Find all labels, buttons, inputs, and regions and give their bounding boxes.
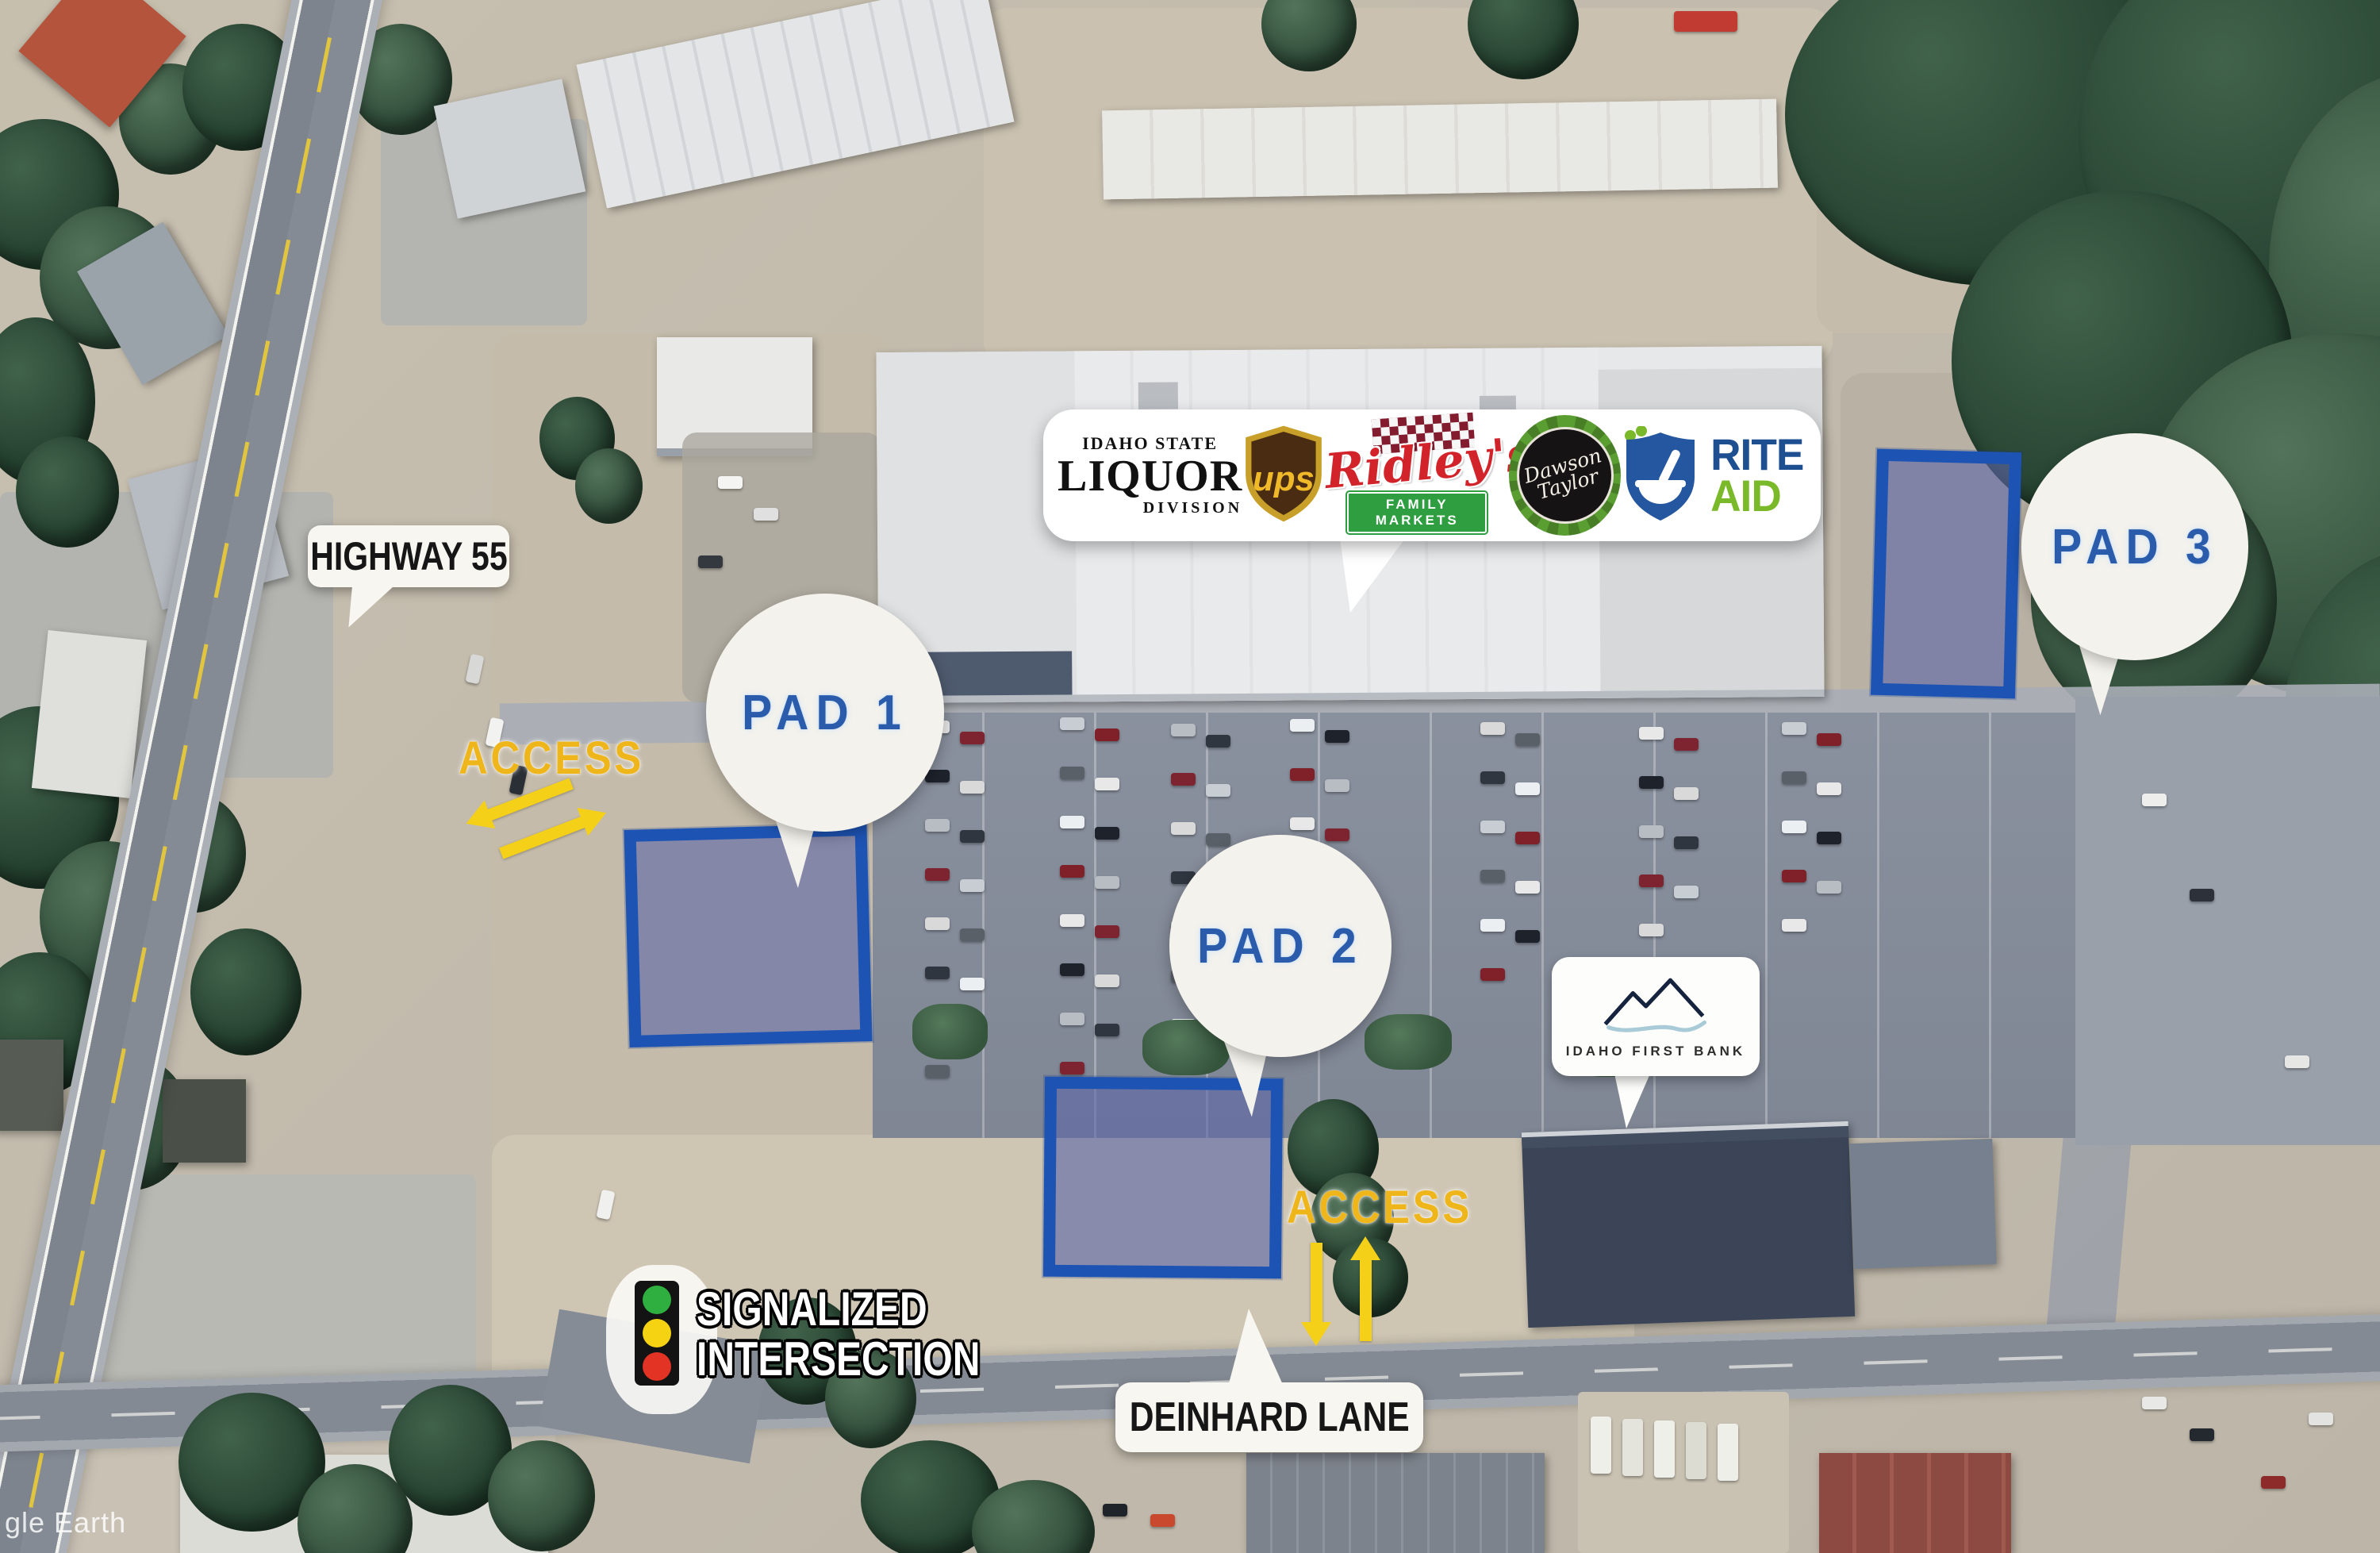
access-label-2: ACCESS [1287, 1181, 1472, 1234]
building-warehouse [577, 0, 1015, 209]
idaho-first-bank-sign[interactable]: IDAHO FIRST BANK [1552, 957, 1760, 1076]
rite-aid-word1: RITE [1711, 434, 1804, 475]
ridleys-logo: Ridley's FAMILY MARKETS [1325, 416, 1509, 535]
ridleys-family-markets: FAMILY MARKETS [1347, 492, 1487, 533]
yellow-light [643, 1319, 671, 1347]
ups-shield-icon: ups [1242, 424, 1325, 524]
building-long-top [1102, 99, 1778, 200]
deinhard-lane-label: DEINHARD LANE [1130, 1393, 1410, 1441]
pad-site-3-outline[interactable] [1871, 449, 2021, 699]
idaho-state-liquor-logo: IDAHO STATE LIQUOR DIVISION [1058, 435, 1242, 516]
green-light [643, 1286, 671, 1314]
pad-2-bubble[interactable]: PAD 2 [1169, 835, 1392, 1057]
satellite-background [0, 0, 2380, 1553]
svg-text:ups: ups [1253, 459, 1315, 498]
signalized-line2: INTERSECTION [697, 1334, 980, 1384]
parking-lot-east [2075, 697, 2380, 1145]
red-light [643, 1352, 671, 1381]
highway-55-label: HIGHWAY 55 [310, 533, 507, 579]
liquor-line2: LIQUOR [1058, 454, 1242, 498]
rite-aid-logo: RITE AID [1621, 426, 1806, 525]
highway-55-label-pill: HIGHWAY 55 [308, 525, 509, 587]
dawson-taylor-logo: Dawson Taylor [1509, 415, 1621, 536]
parking-lot [873, 713, 2077, 1138]
building-bank-canopy [1849, 1139, 1996, 1269]
tenant-logo-sign[interactable]: IDAHO STATE LIQUOR DIVISION ups Ridley's… [1043, 409, 1821, 541]
pad-3-label: PAD 3 [2052, 519, 2218, 575]
pad-1-bubble[interactable]: PAD 1 [706, 594, 944, 832]
signalized-line1: SIGNALIZED [697, 1284, 980, 1334]
pad-2-label: PAD 2 [1197, 918, 1364, 974]
ridleys-script-text: Ridley's [1323, 429, 1511, 500]
pad-1-label: PAD 1 [742, 685, 908, 741]
idaho-first-bank-label: IDAHO FIRST BANK [1566, 1044, 1745, 1059]
liquor-line1: IDAHO STATE [1058, 435, 1242, 452]
rite-aid-mortar-icon [1621, 426, 1700, 525]
aerial-site-map: ACCESS ACCESS SIGNALIZED INTERSECTION HI… [0, 0, 2380, 1553]
signalized-intersection-label: SIGNALIZED INTERSECTION [697, 1284, 980, 1384]
rite-aid-word2: AID [1711, 475, 1804, 517]
mountain-logo-icon [1596, 974, 1715, 1039]
google-earth-watermark: gle Earth [5, 1506, 126, 1540]
deinhard-lane-label-pill: DEINHARD LANE [1115, 1382, 1423, 1452]
building-bank [1522, 1121, 1855, 1328]
access-arrow-up [1360, 1259, 1372, 1341]
access-arrow-down [1311, 1243, 1322, 1324]
access-label-1: ACCESS [459, 732, 644, 785]
liquor-line3: DIVISION [1058, 500, 1242, 516]
traffic-light-icon [635, 1281, 679, 1386]
ups-logo: ups [1242, 424, 1325, 528]
building-red-roof [1819, 1453, 2011, 1553]
dawson-taylor-badge: Dawson Taylor [1517, 427, 1614, 524]
building-bottom-gray [1246, 1453, 1545, 1553]
pad-3-bubble[interactable]: PAD 3 [2021, 433, 2248, 660]
